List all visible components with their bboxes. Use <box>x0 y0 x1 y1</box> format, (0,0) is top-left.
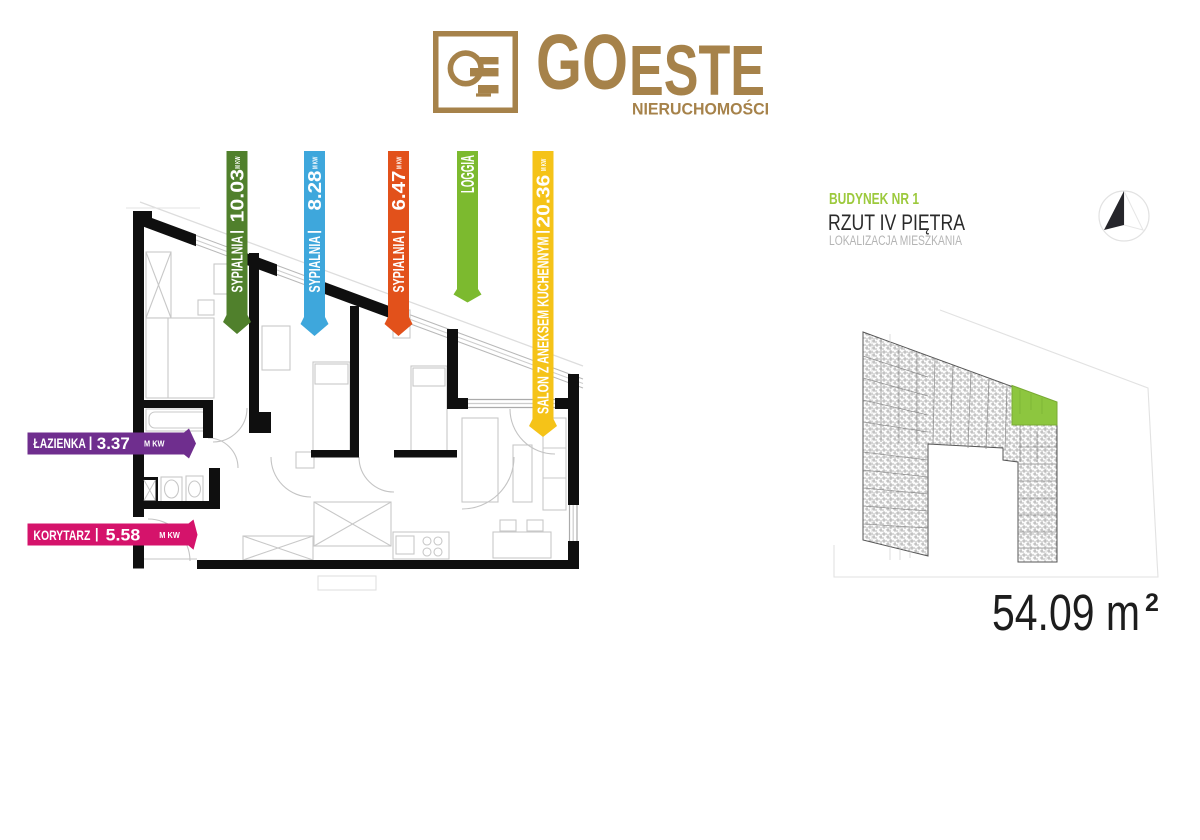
svg-text:8.28: 8.28 <box>305 171 325 211</box>
svg-text:LOKALIZACJA MIESZKANIA: LOKALIZACJA MIESZKANIA <box>829 233 962 248</box>
svg-text:GO: GO <box>536 18 628 106</box>
svg-text:M KW: M KW <box>159 531 180 540</box>
svg-text:NIERUCHOMOŚCI: NIERUCHOMOŚCI <box>632 100 769 119</box>
svg-text:RZUT IV PIĘTRA: RZUT IV PIĘTRA <box>828 210 965 235</box>
svg-text:SYPIALNIA: SYPIALNIA <box>230 236 247 293</box>
svg-text:M KW: M KW <box>144 439 165 448</box>
svg-text:ESTE: ESTE <box>629 32 765 111</box>
svg-text:6.47: 6.47 <box>389 171 409 211</box>
svg-text:SYPIALNIA: SYPIALNIA <box>391 236 408 293</box>
svg-text:KORYTARZ: KORYTARZ <box>33 527 90 543</box>
svg-text:ŁAZIENKA: ŁAZIENKA <box>33 435 86 451</box>
svg-text:10.03: 10.03 <box>228 169 248 223</box>
svg-text:20.36: 20.36 <box>534 175 554 228</box>
svg-text:54.09 m: 54.09 m <box>992 584 1140 641</box>
svg-text:M KW: M KW <box>310 156 319 169</box>
svg-text:M KW: M KW <box>233 156 242 169</box>
svg-text:2: 2 <box>1145 589 1159 617</box>
svg-text:SYPIALNIA: SYPIALNIA <box>307 236 324 293</box>
svg-text:M KW: M KW <box>539 158 548 171</box>
svg-text:3.37: 3.37 <box>97 435 130 453</box>
svg-text:SALON Z ANEKSEM KUCHENNYM: SALON Z ANEKSEM KUCHENNYM <box>536 237 553 415</box>
svg-text:BUDYNEK NR 1: BUDYNEK NR 1 <box>829 191 919 208</box>
svg-text:5.58: 5.58 <box>106 527 141 545</box>
svg-text:LOGGIA: LOGGIA <box>458 155 478 193</box>
svg-text:M KW: M KW <box>394 156 403 169</box>
